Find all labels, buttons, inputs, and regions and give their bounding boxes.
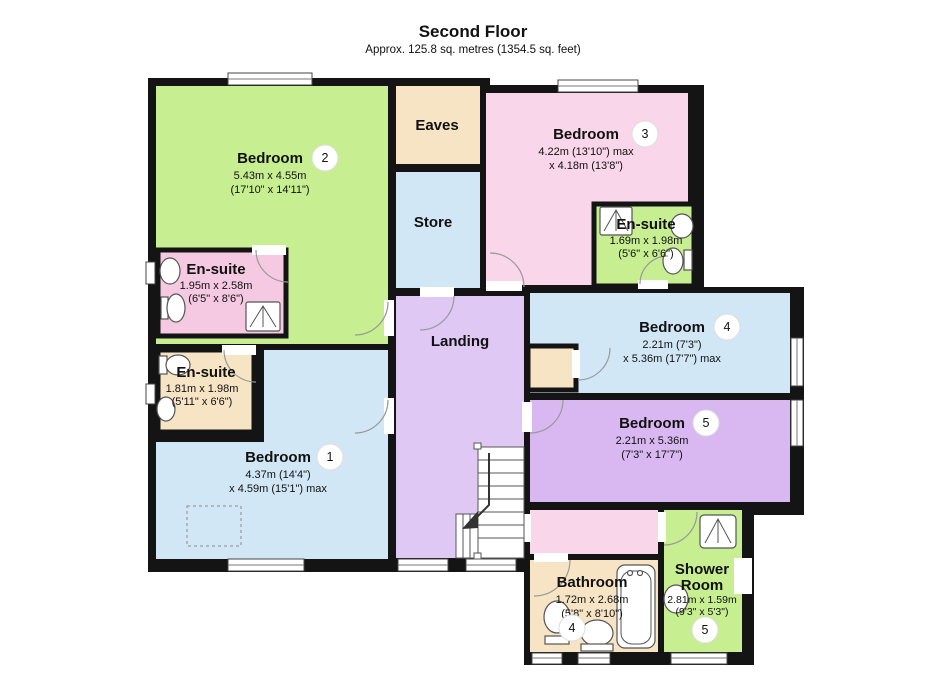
window-shower-room-bottom	[671, 653, 727, 664]
bedroom2-label: Bedroom	[237, 150, 303, 167]
room-vestibule	[528, 346, 576, 390]
window-bedroom5-right	[791, 400, 803, 446]
bedroom2-badge-number: 2	[322, 151, 329, 165]
bedroom1-dims2: x 4.59m (15'1") max	[229, 483, 327, 495]
room-corridor	[530, 510, 658, 554]
window-bedroom4-right	[791, 338, 803, 386]
bedroom1-badge-number: 1	[327, 450, 334, 464]
ensuite2-dims1: 1.95m x 2.58m	[180, 280, 253, 292]
floorplan-drawing: Bedroom 2 5.43m x 4.55m (17'10" x 14'11"…	[0, 0, 946, 680]
window-bedroom1-bottom	[228, 559, 304, 571]
window-bathroom-bottom-left	[532, 653, 562, 664]
bedroom4-label: Bedroom	[639, 319, 705, 336]
ensuite1-dims1: 1.81m x 1.98m	[166, 383, 239, 395]
bedroom5-dims1: 2.21m x 5.36m	[616, 435, 689, 447]
bedroom3-label: Bedroom	[553, 126, 619, 143]
newel-post-bottom	[474, 553, 481, 559]
eaves-label: Eaves	[415, 117, 458, 134]
store-label: Store	[414, 214, 452, 231]
toilet-fixture	[167, 294, 185, 322]
tap	[628, 571, 633, 576]
ensuite3-dims1: 1.69m x 1.98m	[610, 235, 683, 247]
basin-fixture	[581, 620, 613, 646]
window-bedroom2-top	[228, 73, 312, 85]
bedroom5-label: Bedroom	[619, 415, 685, 432]
shower-room-dims2: (9'3" x 5'3")	[676, 606, 729, 618]
bedroom5-badge-number: 5	[703, 416, 710, 430]
window-bedroom3-top	[558, 80, 638, 92]
bedroom3-dims1: 4.22m (13'10") max	[538, 146, 634, 158]
ensuite3-dims2: (5'6" x 6'6")	[618, 248, 673, 260]
ensuite1-dims2: (5'11" x 6'6")	[172, 396, 233, 408]
bathroom-badge-number: 4	[569, 621, 576, 635]
floorplan-page: Second Floor Approx. 125.8 sq. metres (1…	[0, 0, 946, 680]
bedroom4-dims1: 2.21m (7'3")	[642, 339, 701, 351]
ensuite1-label: En-suite	[176, 364, 235, 381]
tap	[638, 571, 643, 576]
window-bathroom-bottom-right	[578, 653, 610, 664]
bedroom2-dims2: (17'10" x 14'11")	[230, 184, 309, 196]
bedroom1-label: Bedroom	[245, 449, 311, 466]
bedroom3-badge-number: 3	[642, 127, 649, 141]
landing-label: Landing	[431, 333, 489, 350]
shower-room-label-line2: Room	[681, 577, 724, 594]
basin-base	[581, 644, 613, 651]
bedroom3-dims2: x 4.18m (13'8")	[549, 160, 623, 172]
ensuite3-label: En-suite	[616, 216, 675, 233]
shower-room-badge-number: 5	[702, 623, 709, 637]
toilet-cistern	[684, 250, 692, 270]
bedroom4-dims2: x 5.36m (17'7") max	[623, 353, 721, 365]
ensuite2-dims2: (6'5" x 8'6")	[188, 293, 243, 305]
window-landing-bottom-left	[398, 559, 448, 571]
shower-room-label-line1: Shower	[675, 561, 729, 578]
bedroom2-dims1: 5.43m x 4.55m	[234, 170, 307, 182]
bedroom4-badge-number: 4	[724, 320, 731, 334]
window-landing-bottom-right	[466, 559, 516, 571]
bedroom1-dims1: 4.37m (14'4")	[245, 469, 310, 481]
window-ensuite2-left	[146, 262, 155, 284]
bathroom-label: Bathroom	[557, 574, 628, 591]
window-ensuite1-left	[146, 384, 155, 404]
basin-fixture	[160, 258, 180, 284]
bedroom5-dims2: (7'3" x 17'7")	[621, 449, 683, 461]
ensuite2-label: En-suite	[186, 261, 245, 278]
newel-post-top	[474, 443, 481, 449]
shower-room-dims1: 2.81m x 1.59m	[667, 594, 737, 606]
bathroom-dims1: 1.72m x 2.68m	[556, 594, 629, 606]
